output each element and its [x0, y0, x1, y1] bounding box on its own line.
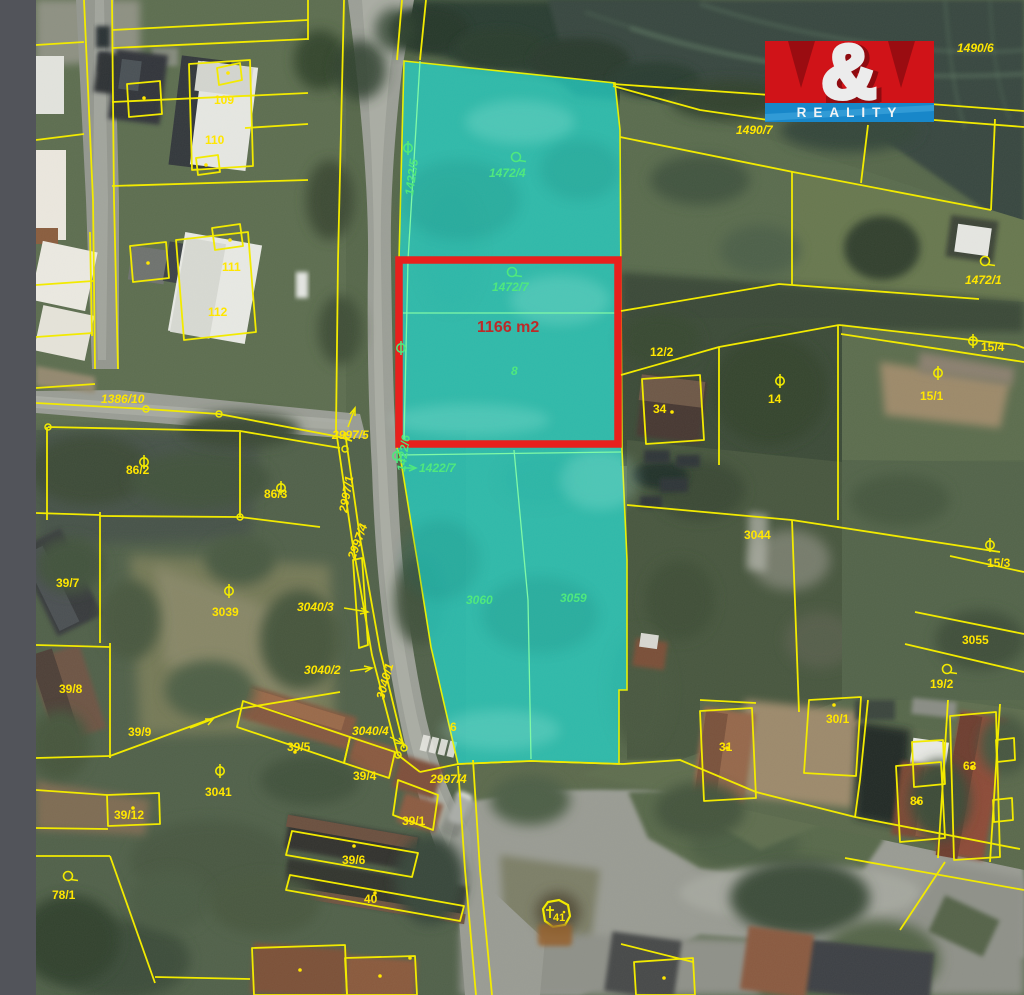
svg-text:3055: 3055: [962, 633, 989, 647]
svg-text:109: 109: [214, 93, 234, 107]
svg-text:15/4: 15/4: [981, 340, 1005, 354]
svg-text:3041: 3041: [205, 785, 232, 799]
svg-text:39/8: 39/8: [59, 682, 83, 696]
svg-text:15/3: 15/3: [987, 556, 1011, 570]
svg-text:39/12: 39/12: [114, 808, 144, 822]
svg-text:6: 6: [450, 720, 457, 734]
svg-text:15/1: 15/1: [920, 389, 944, 403]
svg-text:3059: 3059: [560, 591, 587, 605]
svg-text:3039: 3039: [212, 605, 239, 619]
svg-text:3060: 3060: [466, 593, 493, 607]
svg-text:3040/2: 3040/2: [304, 663, 341, 677]
svg-text:110: 110: [205, 133, 225, 147]
svg-text:39/5: 39/5: [287, 740, 311, 754]
svg-text:39/7: 39/7: [56, 576, 80, 590]
svg-text:3044: 3044: [744, 528, 771, 542]
svg-text:2997/5: 2997/5: [331, 428, 369, 442]
svg-text:8: 8: [511, 364, 518, 378]
svg-text:14: 14: [768, 392, 782, 406]
svg-text:1166 m2: 1166 m2: [477, 319, 539, 336]
svg-text:30/1: 30/1: [826, 712, 850, 726]
svg-text:1490/7: 1490/7: [736, 123, 774, 137]
svg-text:1490/6: 1490/6: [957, 41, 994, 55]
svg-text:REALITY: REALITY: [797, 105, 904, 120]
svg-text:86/3: 86/3: [264, 487, 288, 501]
svg-text:41: 41: [553, 912, 565, 924]
svg-text:1472/1: 1472/1: [965, 273, 1002, 287]
svg-text:2997/4: 2997/4: [429, 772, 467, 786]
svg-text:19/2: 19/2: [930, 677, 954, 691]
svg-text:1472/7: 1472/7: [492, 280, 530, 294]
svg-text:63: 63: [963, 759, 977, 773]
svg-text:1386/10: 1386/10: [101, 392, 145, 406]
svg-text:39/6: 39/6: [342, 853, 366, 867]
svg-text:112: 112: [208, 305, 228, 319]
svg-text:&: &: [822, 30, 877, 115]
svg-text:3040/3: 3040/3: [297, 600, 334, 614]
svg-text:39/1: 39/1: [402, 814, 426, 828]
svg-text:34: 34: [653, 402, 667, 416]
svg-text:1472/4: 1472/4: [489, 166, 526, 180]
svg-text:78/1: 78/1: [52, 888, 76, 902]
svg-text:111: 111: [222, 260, 241, 274]
svg-text:39/4: 39/4: [353, 769, 377, 783]
svg-text:12/2: 12/2: [650, 345, 674, 359]
svg-text:3040/4: 3040/4: [352, 724, 389, 738]
svg-text:39/9: 39/9: [128, 725, 152, 739]
svg-text:1422/7: 1422/7: [419, 461, 457, 475]
